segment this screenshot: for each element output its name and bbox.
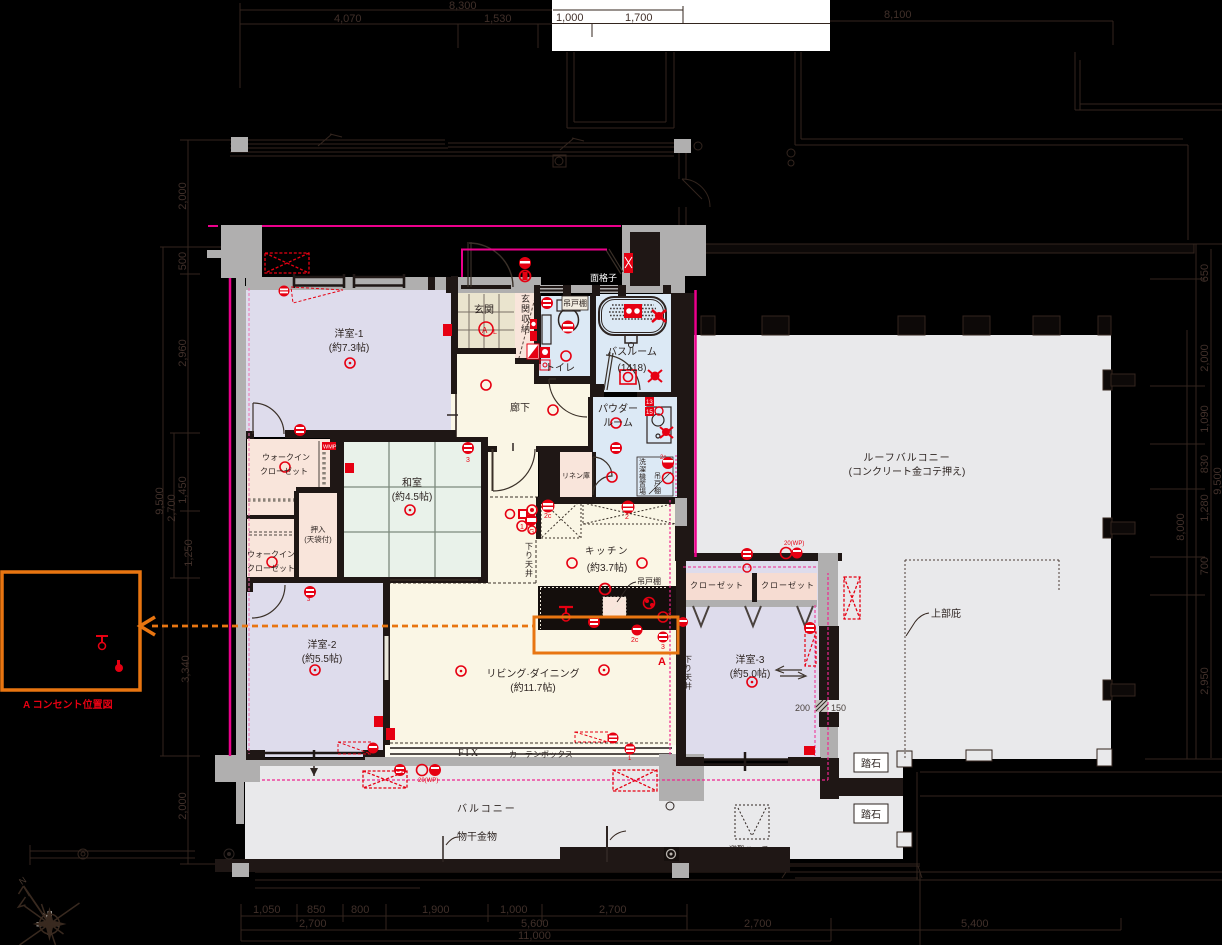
svg-text:(約4.5帖): (約4.5帖) xyxy=(392,490,433,503)
svg-text:リビング·ダイニング: リビング·ダイニング xyxy=(486,667,579,680)
svg-text:8,100: 8,100 xyxy=(884,9,912,21)
svg-text:1: 1 xyxy=(520,524,524,531)
svg-text:ルーフバルコニー: ルーフバルコニー xyxy=(863,452,950,464)
svg-text:玄関: 玄関 xyxy=(474,303,494,316)
svg-text:G: G xyxy=(529,529,534,536)
svg-text:1,900: 1,900 xyxy=(422,904,450,916)
svg-text:廊下: 廊下 xyxy=(510,401,530,414)
svg-text:2c: 2c xyxy=(631,637,639,644)
svg-text:2,700: 2,700 xyxy=(744,918,772,930)
svg-text:(1418): (1418) xyxy=(618,363,647,374)
svg-text:洋室-1: 洋室-1 xyxy=(335,327,364,340)
svg-text:15: 15 xyxy=(646,410,653,416)
svg-text:830: 830 xyxy=(1199,455,1211,473)
svg-text:650: 650 xyxy=(1199,264,1211,282)
svg-text:A: A xyxy=(482,326,488,335)
svg-text:9,500: 9,500 xyxy=(154,487,166,515)
svg-text:2,000: 2,000 xyxy=(177,792,189,820)
svg-text:吊戸棚: 吊戸棚 xyxy=(654,472,661,495)
svg-text:1,530: 1,530 xyxy=(484,13,512,25)
svg-text:洋室-2: 洋室-2 xyxy=(308,638,337,651)
svg-text:面格子: 面格子 xyxy=(590,272,617,283)
svg-text:パウダー: パウダー xyxy=(598,402,638,415)
svg-text:L: L xyxy=(493,329,497,336)
svg-text:リネン庫: リネン庫 xyxy=(562,471,590,480)
svg-text:1,250: 1,250 xyxy=(183,539,195,567)
svg-text:(約5.0帖): (約5.0帖) xyxy=(730,667,771,680)
svg-text:(天袋付): (天袋付) xyxy=(304,534,332,544)
svg-text:150: 150 xyxy=(831,703,846,713)
svg-text:物干金物: 物干金物 xyxy=(457,830,497,843)
svg-text:3: 3 xyxy=(466,457,470,464)
svg-text:2,700: 2,700 xyxy=(166,494,178,522)
svg-text:2,000: 2,000 xyxy=(1199,344,1211,372)
svg-text:2,700: 2,700 xyxy=(299,918,327,930)
svg-text:1,280: 1,280 xyxy=(1199,494,1211,522)
svg-text:キッチン: キッチン xyxy=(585,546,629,557)
svg-text:カーテンボックス: カーテンボックス xyxy=(509,750,573,759)
svg-text:洗濯機置場: 洗濯機置場 xyxy=(639,457,646,496)
svg-text:1,090: 1,090 xyxy=(1199,405,1211,433)
svg-text:1,000: 1,000 xyxy=(500,904,528,916)
svg-text:5,600: 5,600 xyxy=(521,918,549,930)
svg-text:20(WP): 20(WP) xyxy=(784,541,804,547)
svg-text:踏石: 踏石 xyxy=(861,808,881,821)
svg-text:1,450: 1,450 xyxy=(177,476,189,504)
svg-text:クローゼット: クローゼット xyxy=(690,580,744,590)
svg-text:クローゼット: クローゼット xyxy=(247,563,295,573)
svg-text:13: 13 xyxy=(646,400,653,406)
svg-text:吊戸棚: 吊戸棚 xyxy=(563,298,587,308)
svg-text:吊戸棚: 吊戸棚 xyxy=(637,576,661,586)
svg-text:1,050: 1,050 xyxy=(253,904,281,916)
svg-text:(約11.7帖): (約11.7帖) xyxy=(510,681,555,694)
svg-text:700: 700 xyxy=(1199,557,1211,575)
svg-text:クローゼット: クローゼット xyxy=(260,466,308,476)
svg-text:500: 500 xyxy=(177,252,189,270)
svg-text:9,500: 9,500 xyxy=(1212,467,1222,495)
svg-text:上部庇: 上部庇 xyxy=(931,607,961,620)
svg-text:2,000: 2,000 xyxy=(177,182,189,210)
svg-text:バルコニー: バルコニー xyxy=(457,803,517,815)
svg-text:(約5.5帖): (約5.5帖) xyxy=(302,652,343,665)
svg-text:洋室-3: 洋室-3 xyxy=(736,653,765,666)
svg-text:11,000: 11,000 xyxy=(518,930,551,942)
svg-text:WMP: WMP xyxy=(323,445,337,451)
svg-text:2,950: 2,950 xyxy=(1199,667,1211,695)
svg-text:(コンクリート金コテ押え): (コンクリート金コテ押え) xyxy=(849,465,966,478)
svg-text:踏石: 踏石 xyxy=(861,757,881,770)
svg-text:8,300: 8,300 xyxy=(449,0,477,12)
svg-text:3,340: 3,340 xyxy=(180,655,192,683)
svg-text:和室: 和室 xyxy=(402,476,422,489)
svg-text:A コンセント位置図: A コンセント位置図 xyxy=(23,698,113,711)
svg-text:下り天井: 下り天井 xyxy=(525,542,533,578)
svg-text:2c: 2c xyxy=(660,455,666,461)
svg-text:A: A xyxy=(658,656,666,668)
svg-text:(約7.3帖): (約7.3帖) xyxy=(329,341,370,354)
svg-text:下り天井: 下り天井 xyxy=(684,655,692,691)
svg-text:ウォークイン: ウォークイン xyxy=(262,453,310,462)
svg-text:3: 3 xyxy=(661,644,665,651)
svg-text:クローゼット: クローゼット xyxy=(761,580,815,590)
svg-text:2: 2 xyxy=(625,514,629,521)
svg-text:バスルーム: バスルーム xyxy=(607,346,657,358)
svg-text:(約3.7帖): (約3.7帖) xyxy=(587,561,628,574)
svg-text:5,400: 5,400 xyxy=(961,918,989,930)
svg-text:1,000: 1,000 xyxy=(556,12,584,24)
svg-text:850: 850 xyxy=(307,904,325,916)
svg-text:800: 800 xyxy=(351,904,369,916)
svg-text:200: 200 xyxy=(795,703,810,713)
svg-text:FIX: FIX xyxy=(458,748,480,759)
svg-text:4,070: 4,070 xyxy=(334,13,362,25)
svg-text:ウォークイン: ウォークイン xyxy=(247,550,295,559)
svg-text:トイレ: トイレ xyxy=(545,363,575,374)
svg-text:玄関収納: 玄関収納 xyxy=(521,293,530,334)
svg-text:2,700: 2,700 xyxy=(599,904,627,916)
svg-text:2,960: 2,960 xyxy=(177,339,189,367)
svg-text:押入: 押入 xyxy=(311,524,326,534)
svg-text:20(WP): 20(WP) xyxy=(418,778,438,784)
svg-text:2c: 2c xyxy=(544,513,552,520)
svg-text:ルーム: ルーム xyxy=(603,417,633,429)
svg-text:8,000: 8,000 xyxy=(1175,513,1187,541)
svg-text:1,700: 1,700 xyxy=(625,12,653,24)
